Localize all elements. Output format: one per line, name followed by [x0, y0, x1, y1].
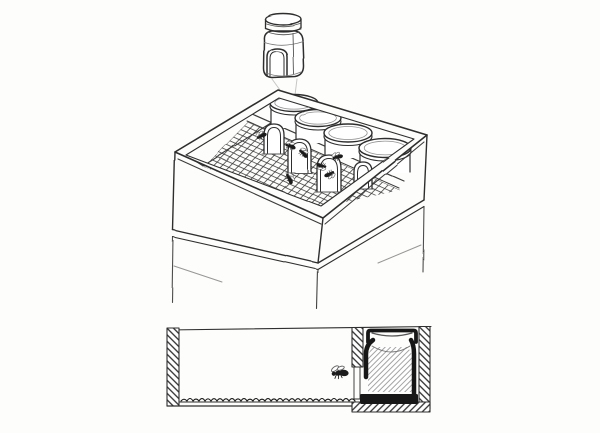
sketch-canvas	[0, 0, 600, 433]
bees-cross-section	[330, 363, 350, 379]
entrance	[262, 124, 286, 154]
divider-lower-strip	[352, 367, 362, 399]
jar-lid-top	[265, 14, 301, 25]
cross-section-diagram	[167, 327, 431, 413]
wavy-baseline	[181, 399, 355, 401]
box2-right-edge	[423, 207, 424, 273]
section-left-wall	[167, 328, 179, 406]
cross-section-jar	[360, 331, 418, 405]
jar-flange-inner-curve	[372, 333, 412, 336]
floating-jar	[264, 14, 304, 78]
jar-interior-shading	[368, 346, 412, 392]
section-divider-wall	[352, 328, 363, 368]
box2-corner-edge	[317, 270, 318, 310]
sketch-page	[0, 0, 600, 433]
jar-base	[360, 394, 418, 404]
top-illustration	[172, 14, 427, 310]
box2-partial-line-left	[174, 266, 222, 282]
box2-left-edge	[172, 237, 173, 302]
bee-icon	[330, 363, 350, 379]
section-right-wall	[419, 327, 430, 410]
box2-partial-line-right	[378, 245, 421, 263]
